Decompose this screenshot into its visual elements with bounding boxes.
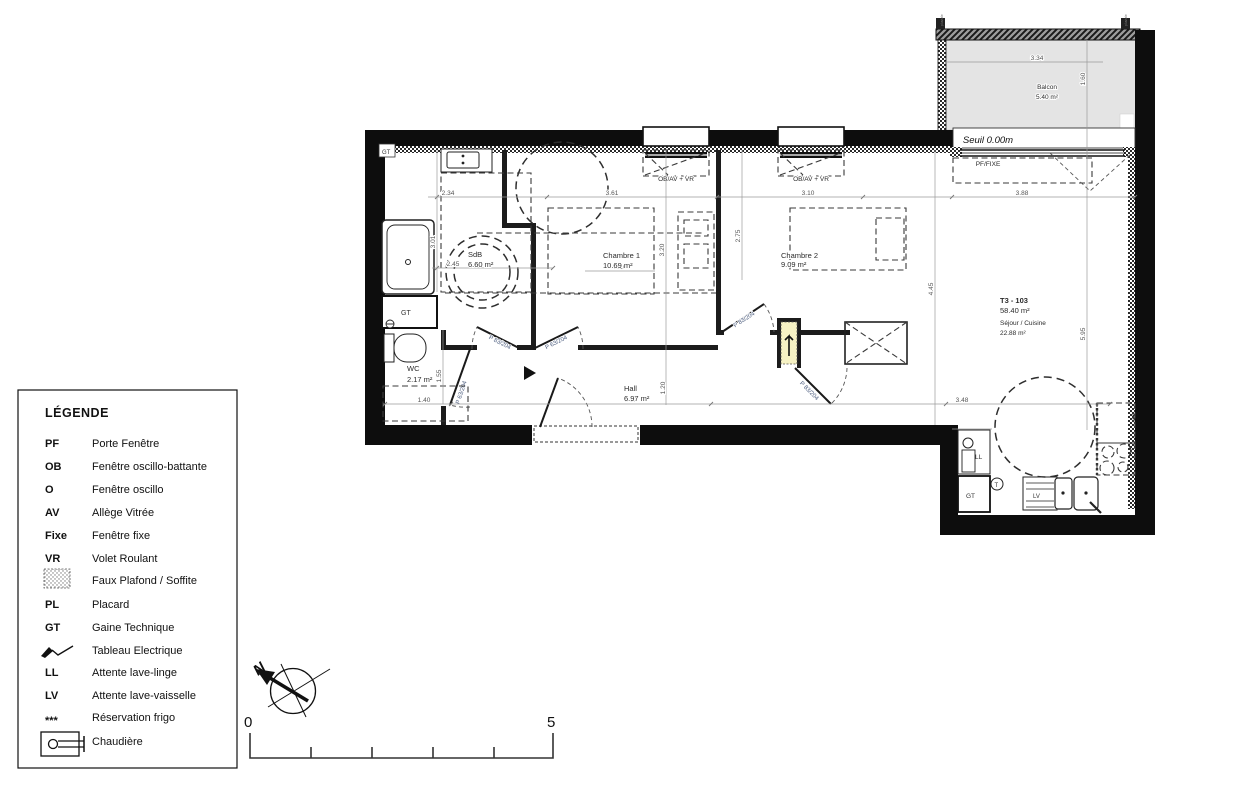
room-labels: SdB 6.60 m² Chambre 1 10.69 m² Chambre 2… — [407, 250, 1046, 403]
room-name: WC — [407, 364, 420, 373]
balcony-area: 5.40 m² — [1036, 94, 1059, 101]
main-room-area: 22.88 m² — [1000, 330, 1026, 337]
dim-label: 3.10 — [802, 190, 815, 197]
legend-key: LL — [45, 667, 59, 679]
legend-key: OB — [45, 461, 62, 473]
dim-label: 3.88 — [1016, 190, 1029, 197]
dim-label: 1.20 — [660, 381, 667, 394]
dim-label: 2.75 — [735, 229, 742, 242]
dim-label: 5.95 — [1080, 327, 1087, 340]
frido-stars: *** — [1128, 414, 1135, 422]
main-room-name: Séjour / Cuisine — [1000, 320, 1046, 327]
legend-label: Chaudière — [92, 736, 143, 748]
legend-label: Attente lave-linge — [92, 667, 177, 679]
scale-start: 0 — [244, 714, 252, 731]
room-area: 6.60 m² — [468, 260, 494, 269]
room-name: SdB — [468, 250, 482, 259]
legend: LÉGENDE PF Porte Fenêtre OB Fenêtre osci… — [18, 390, 237, 768]
seuil-label: Seuil 0.00m — [963, 135, 1013, 146]
door-stop — [524, 366, 536, 380]
hob-burner — [1102, 446, 1114, 458]
dim-label: 1.40 — [418, 397, 431, 404]
room-area: 10.69 m² — [603, 261, 633, 270]
dim-label: 4.45 — [928, 282, 935, 295]
north-arrow: N — [250, 658, 330, 717]
toilet-bowl — [394, 334, 426, 362]
downpipe-label: pluviale — [1124, 14, 1128, 26]
legend-key: VR — [45, 553, 60, 565]
legend-title: LÉGENDE — [45, 405, 109, 420]
legend-key: PF — [45, 438, 59, 450]
washer-space — [958, 430, 990, 474]
legend-label: Porte Fenêtre — [92, 438, 159, 450]
legend-label: Fenêtre oscillo-battante — [92, 461, 207, 473]
scale-bar: 0 5 — [244, 714, 555, 758]
dim-label: 3.20 — [659, 243, 666, 256]
legend-key: LV — [45, 690, 59, 702]
gt-label: GT — [382, 150, 391, 156]
bay-window: Seuil 0.00m PF/FIXE — [950, 128, 1135, 191]
legend-key: Fixe — [45, 530, 67, 542]
legend-label: Fenêtre oscillo — [92, 484, 164, 496]
dim-label: 3.48 — [956, 397, 969, 404]
interior-walls — [441, 150, 907, 425]
washbasin — [447, 152, 479, 168]
room-area: 2.17 m² — [407, 375, 433, 384]
balcony-door-swing — [1050, 153, 1132, 191]
dim-label: 3.61 — [606, 190, 619, 197]
legend-key: GT — [45, 622, 61, 634]
legend-key: PL — [45, 599, 59, 611]
roller-shutter-box — [778, 127, 844, 146]
bed-2 — [790, 208, 906, 270]
dim-label: 2.45 — [447, 261, 460, 268]
balcony-top-rail — [936, 29, 1140, 40]
room-name: Chambre 1 — [603, 251, 640, 260]
room-name: Chambre 2 — [781, 251, 818, 260]
legend-label: Gaine Technique — [92, 622, 174, 634]
dim-label: 2.34 — [442, 190, 455, 197]
dim-label: 3.34 — [1031, 55, 1044, 62]
dim-label: 3.01 — [430, 235, 437, 248]
dim-label: 1.55 — [436, 369, 443, 382]
window-label: OB/AV + VR — [793, 176, 829, 183]
wardrobe — [678, 212, 714, 290]
soffit-swatch-icon — [44, 569, 70, 588]
t-label: T — [995, 483, 999, 489]
unit-area: 58.40 m² — [1000, 306, 1030, 315]
turning-circle — [995, 377, 1095, 477]
door-label: P 83/204 — [798, 381, 820, 403]
legend-key: O — [45, 484, 54, 496]
floor-plan-drawing: Balcon 5.40 m² pluviale pluviale OB/AV +… — [0, 0, 1246, 800]
dim-label: 1.60 — [1080, 72, 1087, 85]
bathtub — [382, 220, 434, 294]
room-area: 6.97 m² — [624, 394, 650, 403]
roller-shutter-box — [643, 127, 709, 146]
unit-code: T3 - 103 — [1000, 296, 1028, 305]
kitchen-fixtures: LL GT T LV *** — [952, 403, 1135, 513]
gt-label: GT — [966, 493, 975, 500]
scale-end: 5 — [547, 714, 555, 731]
legend-label: Allège Vitrée — [92, 507, 154, 519]
legend-label: Tableau Electrique — [92, 645, 183, 657]
legend-label: Fenêtre fixe — [92, 530, 150, 542]
window-label: OB/AV + VR — [658, 176, 694, 183]
legend-label: Faux Plafond / Soffite — [92, 575, 197, 587]
legend-key: AV — [45, 507, 60, 519]
legend-key-stars: *** — [45, 715, 59, 727]
window-ob-av-vr-2: OB/AV + VR — [778, 127, 844, 183]
turning-circle — [516, 142, 608, 234]
legend-label: Volet Roulant — [92, 553, 157, 565]
legend-label: Attente lave-vaisselle — [92, 690, 196, 702]
bay-label: PF/FIXE — [976, 161, 1001, 168]
window-ob-av-vr-1: OB/AV + VR — [643, 127, 709, 183]
downpipe-label: pluviale — [940, 14, 944, 26]
ll-label: LL — [975, 454, 983, 461]
door-label: P 83/204 — [733, 311, 757, 329]
legend-label: Placard — [92, 599, 129, 611]
gt-label: GT — [401, 310, 411, 317]
room-area: 9.09 m² — [781, 260, 807, 269]
balcony-label: Balcon — [1037, 84, 1057, 91]
dishwasher — [1023, 477, 1057, 510]
lv-label: LV — [1033, 494, 1040, 500]
room-name: Hall — [624, 384, 637, 393]
turning-circle — [446, 236, 518, 308]
legend-label: Réservation frigo — [92, 712, 175, 724]
toilet-tank — [384, 334, 394, 362]
